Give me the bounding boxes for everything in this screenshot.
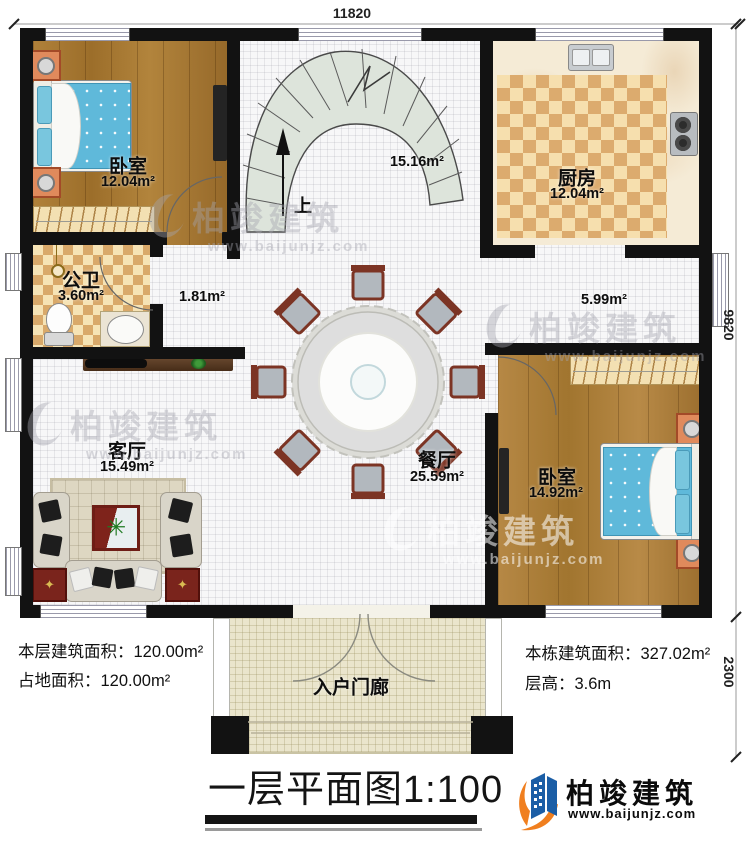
dimension-top-width: 11820 xyxy=(330,5,374,21)
porch-column-right xyxy=(471,716,513,754)
wardrobe-bedroom2 xyxy=(570,356,700,385)
tv-screen xyxy=(85,359,147,368)
sink-basin xyxy=(572,49,590,66)
room-area-bathroom: 3.60m² xyxy=(58,288,104,304)
sofa-bottom xyxy=(65,560,162,602)
plan-title-scale: 1:100 xyxy=(403,769,503,811)
pillow xyxy=(675,450,690,490)
wall-left xyxy=(20,28,33,618)
stat-floor-area-label: 本层建筑面积： xyxy=(18,643,134,661)
kitchen-sink xyxy=(568,44,614,71)
wall-kitchen-left xyxy=(480,41,493,258)
burner xyxy=(675,117,691,133)
area-label-hall: 1.81m² xyxy=(179,289,225,305)
stove xyxy=(670,112,698,156)
wall-bathroom-right-lower xyxy=(150,304,163,347)
wall-kitchen-bottom-right xyxy=(625,245,712,258)
entrance-door-gap xyxy=(293,605,430,618)
sofa-left xyxy=(33,492,70,568)
porch-column-left xyxy=(211,716,249,754)
wall-bedroom1-right xyxy=(227,41,240,245)
wall-living-top xyxy=(20,347,245,359)
stat-storey-height-value: 3.6m xyxy=(575,675,612,693)
stat-building-area-label: 本栋建筑面积： xyxy=(525,645,641,663)
stat-storey-height: 层高：3.6m xyxy=(525,670,611,694)
kitchen-checker-floor xyxy=(497,75,667,238)
plan-title: 一层平面图1:100 xyxy=(208,758,503,813)
stat-building-area: 本栋建筑面积：327.02m² xyxy=(525,640,710,664)
stat-footprint-value: 120.00m² xyxy=(101,672,171,690)
stairs-up-label: 上 xyxy=(294,192,312,218)
window-left-living-2 xyxy=(5,547,22,596)
bathroom-counter xyxy=(100,311,150,347)
burner xyxy=(675,135,691,151)
porch-side-wall-right xyxy=(485,618,502,720)
window-top-bedroom1 xyxy=(45,28,130,41)
plant-decor xyxy=(191,358,206,369)
room-area-dining: 25.59m² xyxy=(410,469,464,485)
sofa-cushion xyxy=(69,567,94,592)
pillow xyxy=(37,128,52,166)
tv-panel-bedroom2 xyxy=(499,448,509,514)
sofa-cushion xyxy=(38,499,62,523)
room-area-bedroom1: 12.04m² xyxy=(101,174,155,190)
window-top-kitchen xyxy=(535,28,664,41)
title-underline-thin xyxy=(205,828,482,831)
tv-panel-bedroom1 xyxy=(213,85,227,161)
pillow xyxy=(675,494,690,534)
sofa-right xyxy=(160,492,202,568)
wall-bedroom1-bottom-stub xyxy=(222,232,240,245)
toilet-tank xyxy=(44,332,74,346)
wash-basin xyxy=(107,315,144,344)
plan-title-text: 一层平面图 xyxy=(208,769,403,811)
stat-footprint-label: 占地面积： xyxy=(18,672,101,690)
wall-kitchen-bottom-left xyxy=(480,245,535,258)
nightstand xyxy=(30,167,61,198)
brand-logo-icon xyxy=(513,768,563,832)
wall-right xyxy=(699,28,712,618)
sofa-cushion xyxy=(39,533,62,556)
sofa-cushion xyxy=(168,498,193,523)
window-left-living-1 xyxy=(5,358,22,432)
wall-hall-stub xyxy=(227,245,240,259)
stat-building-area-value: 327.02m² xyxy=(641,645,711,663)
room-label-porch: 入户门廊 xyxy=(313,673,389,700)
sofa-cushion xyxy=(91,566,113,588)
stat-footprint: 占地面积：120.00m² xyxy=(18,667,170,691)
stat-floor-area-value: 120.00m² xyxy=(134,643,204,661)
stat-floor-area: 本层建筑面积：120.00m² xyxy=(18,638,203,662)
room-area-bedroom2: 14.92m² xyxy=(529,485,583,501)
wall-bedroom1-bottom xyxy=(33,232,167,245)
blanket xyxy=(51,83,81,169)
wall-bedroom2-left xyxy=(485,413,498,605)
sofa-cushion xyxy=(114,568,135,589)
toilet xyxy=(44,303,72,345)
brand-url: www.baijunjz.com xyxy=(568,806,696,821)
dimension-right-height: 9820 xyxy=(721,306,737,343)
room-area-kitchen: 12.04m² xyxy=(550,186,604,202)
bed-bedroom2 xyxy=(600,443,710,540)
title-underline-thick xyxy=(205,815,477,824)
pillow xyxy=(37,86,52,124)
sofa-cushion xyxy=(134,566,159,591)
room-area-living: 15.49m² xyxy=(100,459,154,475)
blanket xyxy=(649,447,677,536)
sink-basin xyxy=(592,49,610,66)
dimension-porch-height: 2300 xyxy=(721,653,737,690)
area-label-corridor: 5.99m² xyxy=(581,292,627,308)
coffee-table xyxy=(92,505,140,551)
window-bottom-bedroom2 xyxy=(545,605,662,618)
window-top-stairhall xyxy=(298,28,422,41)
stat-storey-height-label: 层高： xyxy=(525,675,575,693)
area-label-stair-hall: 15.16m² xyxy=(390,154,444,170)
window-bottom-living xyxy=(40,605,147,618)
tv-cabinet xyxy=(83,357,233,371)
end-table-left xyxy=(32,568,67,602)
porch-side-wall-left xyxy=(213,618,230,720)
wall-bathroom-right-upper xyxy=(150,245,163,257)
sofa-cushion xyxy=(169,533,193,557)
wall-bedroom2-top xyxy=(485,343,712,355)
end-table-right xyxy=(165,568,200,602)
window-left-bathroom xyxy=(5,253,22,291)
nightstand xyxy=(30,50,61,81)
floor-plan-canvas: 卧室 12.04m² 厨房 12.04m² 公卫 3.60m² 客厅 15.49… xyxy=(0,0,750,842)
toilet-bowl xyxy=(46,303,72,335)
wardrobe-bedroom1 xyxy=(33,206,155,235)
